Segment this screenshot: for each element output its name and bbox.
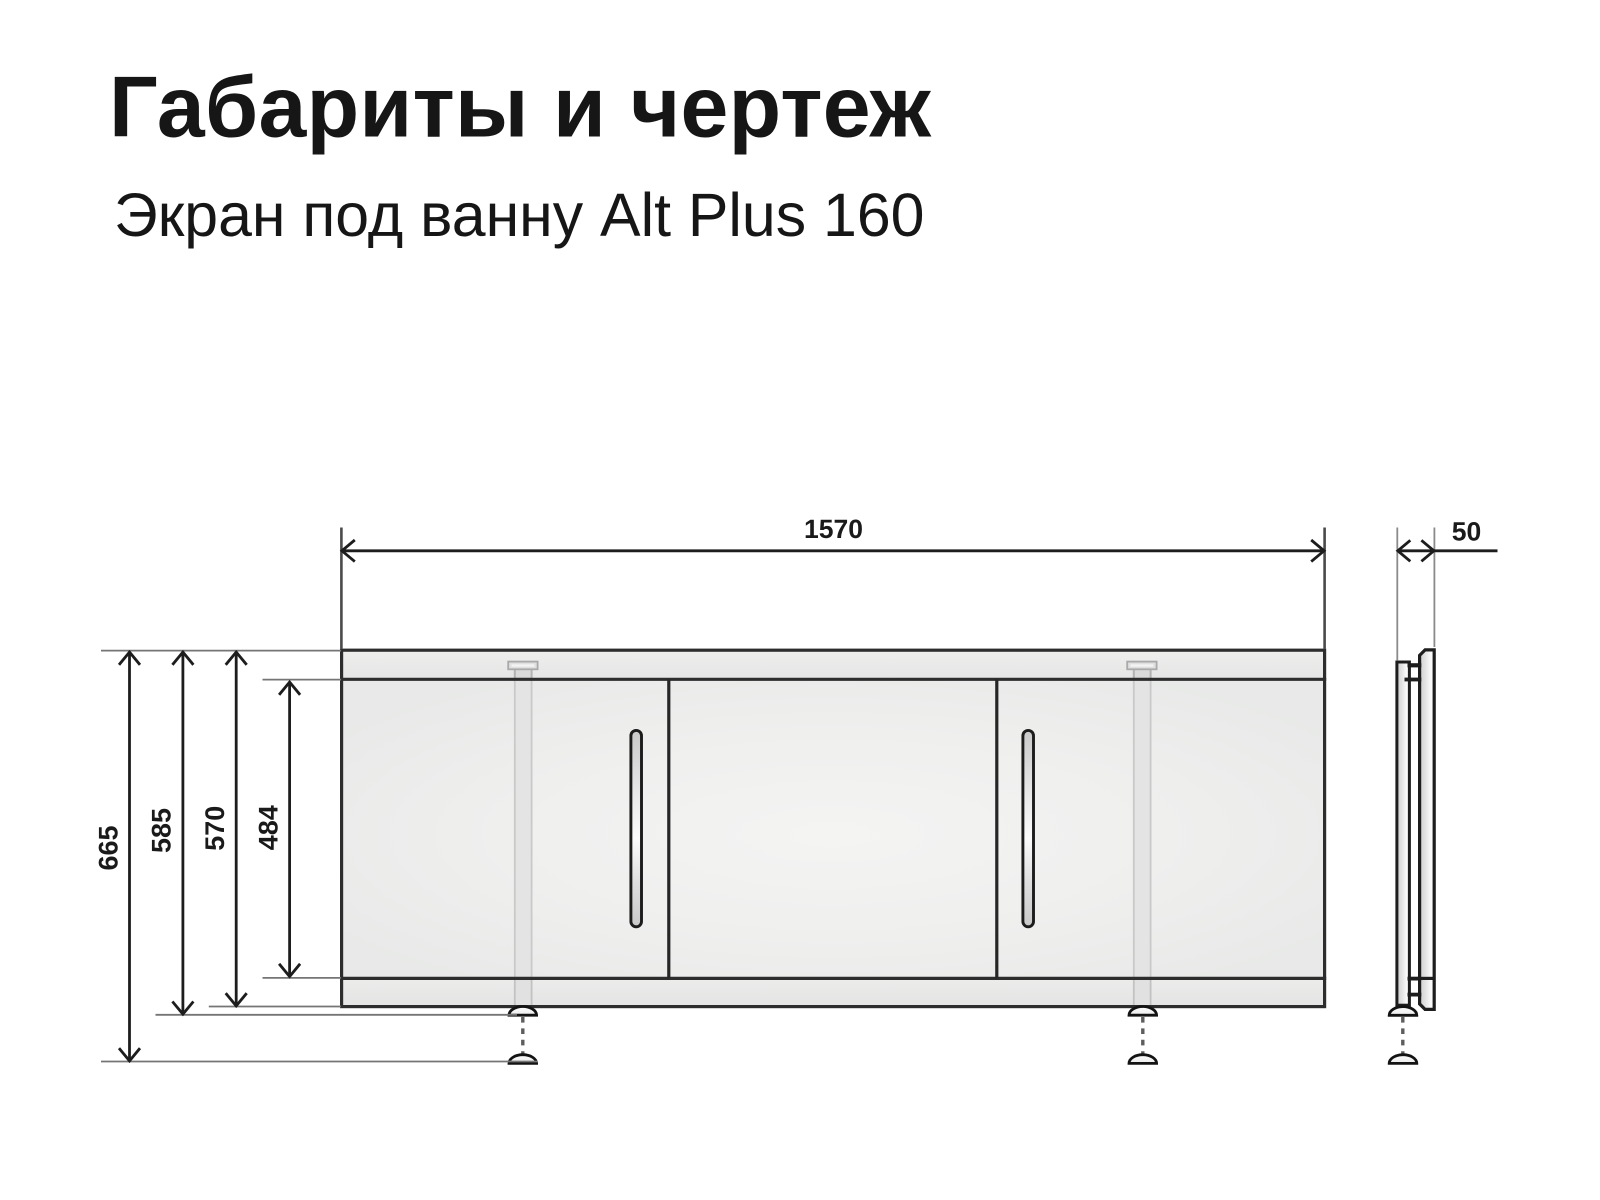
svg-text:Габариты и чертеж: Габариты и чертеж — [109, 60, 932, 156]
svg-text:Экран под ванну Alt Plus 160: Экран под ванну Alt Plus 160 — [114, 181, 924, 249]
